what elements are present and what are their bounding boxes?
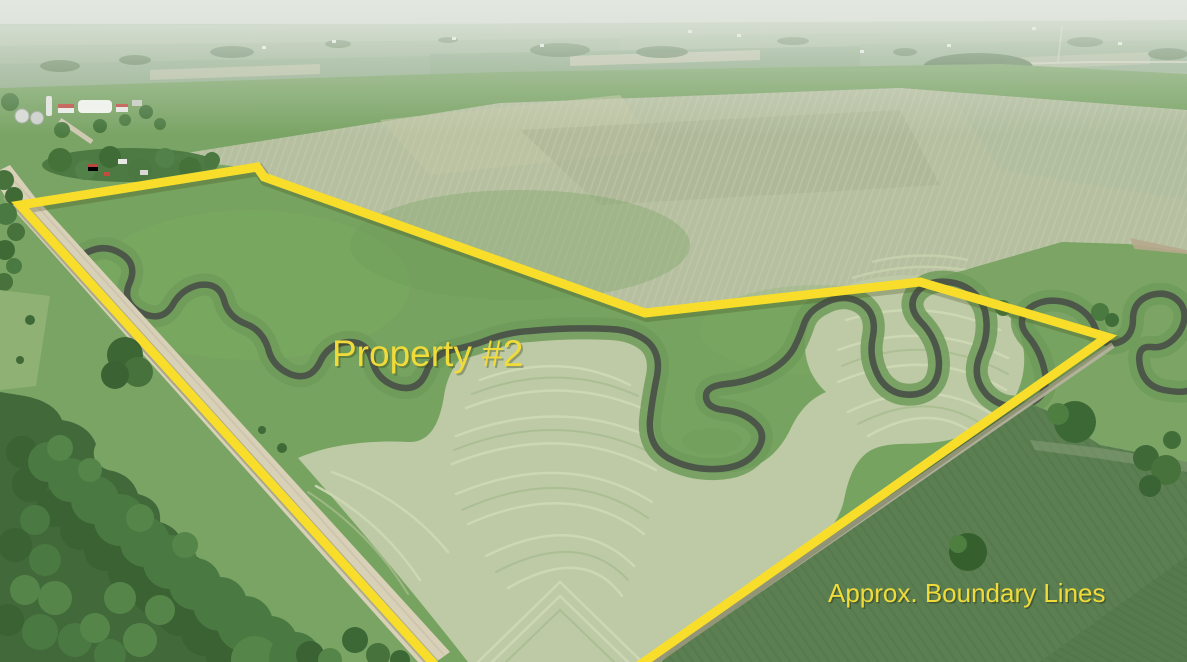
property-label: Property #2 <box>332 333 523 374</box>
horizon-haze <box>0 0 1187 135</box>
aerial-photo: Property #2 Property #2 Approx. Boundary… <box>0 0 1187 662</box>
aerial-photo-stage: Property #2 Property #2 Approx. Boundary… <box>0 0 1187 662</box>
creek-island <box>682 428 742 454</box>
boundary-note: Approx. Boundary Lines <box>828 578 1106 608</box>
